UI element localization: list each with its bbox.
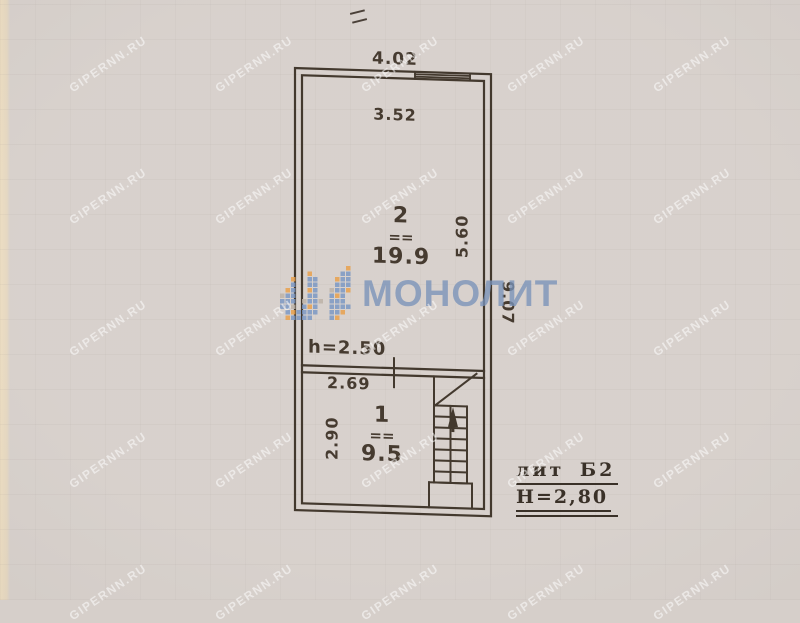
watermark-text: GIPERNN.RU <box>505 561 588 623</box>
watermark-text: GIPERNN.RU <box>651 297 734 359</box>
watermark-text: GIPERNN.RU <box>67 33 150 95</box>
watermark-text: GIPERNN.RU <box>505 165 588 227</box>
watermark-text: GIPERNN.RU <box>213 561 296 623</box>
watermark-text: GIPERNN.RU <box>651 165 734 227</box>
watermark-text: GIPERNN.RU <box>67 165 150 227</box>
scan-artifact <box>350 9 367 23</box>
watermark-text: GIPERNN.RU <box>651 33 734 95</box>
scanned-floor-plan-document: 4.02 3.52 2 == 19.9 5.60 9.07 h=2.50 2.6… <box>0 0 800 600</box>
watermark-text: GIPERNN.RU <box>651 429 734 491</box>
liter-annotation: лит Б2 Н=2,80 <box>516 461 618 517</box>
watermark-text: GIPERNN.RU <box>67 429 150 491</box>
watermark-text: GIPERNN.RU <box>67 297 150 359</box>
paper-left-edge <box>0 0 10 600</box>
floor-plan: 4.02 3.52 2 == 19.9 5.60 9.07 h=2.50 2.6… <box>293 66 497 524</box>
dimension-inner-height-right: 5.60 <box>455 214 471 258</box>
liter-label: лит Б2 <box>516 461 618 485</box>
watermark-text: GIPERNN.RU <box>359 561 442 623</box>
ceiling-height-label: h=2.50 <box>308 338 386 358</box>
height-label: Н=2,80 <box>516 488 611 512</box>
watermark-text: GIPERNN.RU <box>213 165 296 227</box>
stair-landing <box>429 482 472 508</box>
dimension-outer-height-right: 9.07 <box>500 281 516 325</box>
dimension-inner-width-middle: 2.69 <box>327 375 370 392</box>
watermark-text: GIPERNN.RU <box>67 561 150 623</box>
watermark-text: GIPERNN.RU <box>213 297 296 359</box>
dimension-inner-height-left: 2.90 <box>325 416 341 460</box>
watermark-text: GIPERNN.RU <box>505 33 588 95</box>
watermark-text: GIPERNN.RU <box>213 33 296 95</box>
watermark-text: GIPERNN.RU <box>651 561 734 623</box>
